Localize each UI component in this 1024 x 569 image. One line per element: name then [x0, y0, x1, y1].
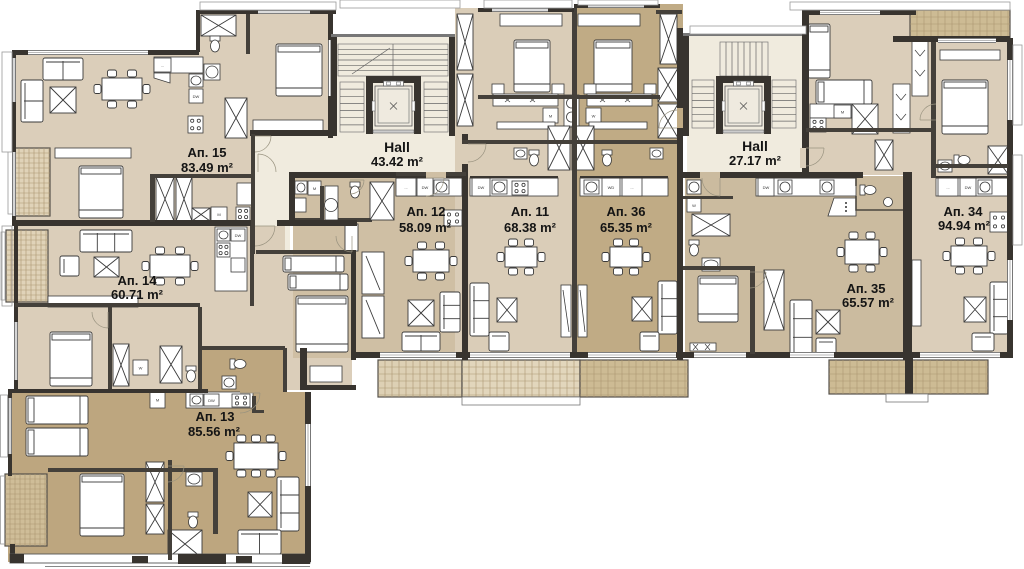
svg-text:...: ...: [630, 185, 633, 190]
svg-text:...: ...: [404, 185, 407, 190]
svg-text:43.42 m²: 43.42 m²: [371, 154, 424, 169]
svg-text:M: M: [217, 212, 220, 217]
svg-text:Ап. 36: Ап. 36: [607, 204, 646, 219]
svg-text:Ап. 11: Ап. 11: [511, 204, 549, 219]
svg-text:DW: DW: [478, 185, 485, 190]
svg-text:83.49 m²: 83.49 m²: [181, 160, 234, 175]
svg-text:DW: DW: [193, 94, 200, 99]
svg-text:Ап. 34: Ап. 34: [944, 204, 984, 219]
svg-text:DW: DW: [235, 233, 242, 238]
svg-text:Hall: Hall: [742, 138, 768, 154]
svg-text:M: M: [313, 186, 316, 191]
svg-text:Ап. 13: Ап. 13: [196, 409, 235, 424]
svg-text:DW: DW: [422, 185, 429, 190]
svg-text:65.57 m²: 65.57 m²: [842, 295, 895, 310]
svg-text:DW: DW: [763, 185, 770, 190]
svg-text:27.17 m²: 27.17 m²: [729, 153, 782, 168]
svg-text:65.35 m²: 65.35 m²: [600, 220, 653, 235]
svg-text:Ап. 12: Ап. 12: [407, 204, 446, 219]
svg-text:85.56 m²: 85.56 m²: [188, 424, 241, 439]
svg-text:DW: DW: [965, 185, 972, 190]
svg-text:...: ...: [946, 185, 949, 190]
svg-text:WD: WD: [608, 185, 615, 190]
svg-text:M: M: [841, 110, 844, 115]
svg-text:Ап. 14: Ап. 14: [118, 273, 158, 288]
svg-text:Ап. 35: Ап. 35: [847, 281, 886, 296]
svg-text:Ап. 15: Ап. 15: [188, 145, 227, 160]
svg-text:W: W: [592, 114, 596, 119]
svg-text:W: W: [692, 203, 696, 208]
svg-text:58.09 m²: 58.09 m²: [399, 220, 452, 235]
svg-text:M: M: [549, 114, 552, 119]
svg-text:Hall: Hall: [384, 139, 410, 155]
svg-text:W: W: [139, 366, 143, 371]
svg-text:M: M: [156, 398, 159, 403]
svg-text:94.94 m²: 94.94 m²: [938, 218, 991, 233]
svg-text:68.38 m²: 68.38 m²: [504, 220, 557, 235]
svg-text:DW: DW: [208, 398, 215, 403]
svg-text:...: ...: [161, 63, 164, 68]
svg-text:60.71 m²: 60.71 m²: [111, 287, 164, 302]
